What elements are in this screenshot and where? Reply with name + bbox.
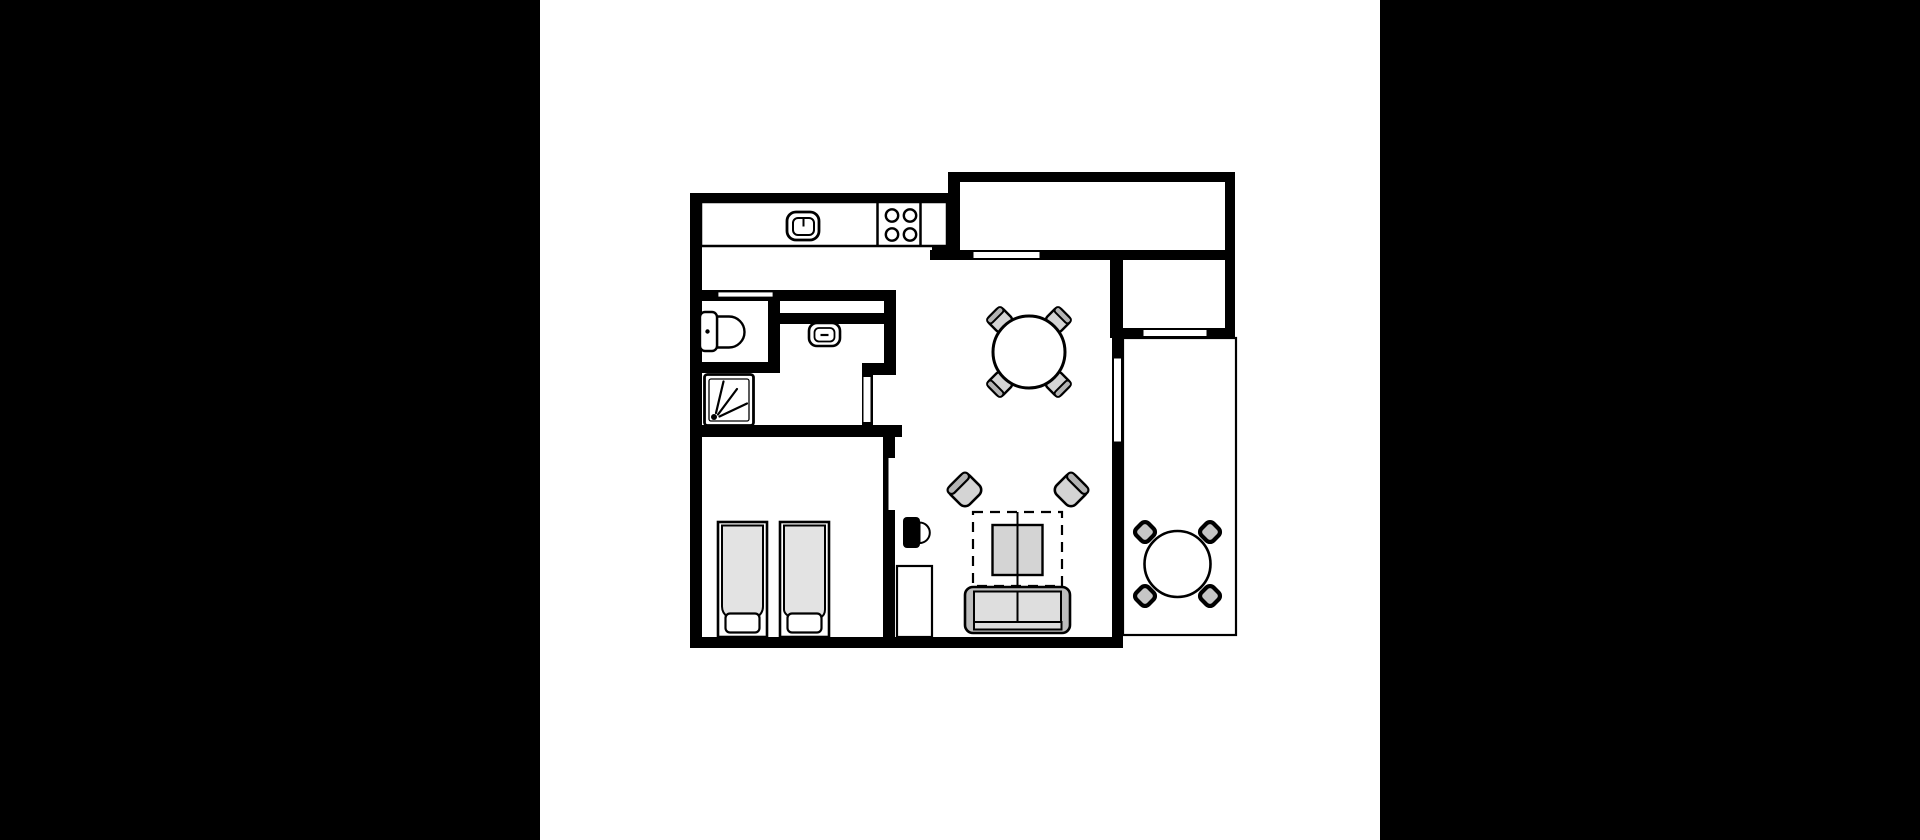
wc-vent-window <box>718 292 773 297</box>
toilet-flush-dot <box>705 329 709 333</box>
wall-left <box>690 193 702 648</box>
wall-wc-right <box>768 297 780 362</box>
floor-panel <box>540 0 1380 840</box>
bath-door-leaf <box>864 377 871 422</box>
sofa-cushion-left <box>974 592 1018 623</box>
burner-bottom-right <box>904 228 916 240</box>
wall-bath-jog <box>862 363 896 375</box>
bed-1-pillow <box>726 614 760 633</box>
wall-bath-inner-top <box>780 313 896 324</box>
wall-bottom <box>690 637 1123 648</box>
bedroom-door-leaf <box>889 458 896 510</box>
wall-bath-right <box>884 301 896 363</box>
sofa-front-edge <box>974 622 1062 630</box>
balcony-table <box>1145 531 1211 597</box>
hall-closet <box>897 566 932 637</box>
sofa-cushion-right <box>1018 592 1062 623</box>
storage-window <box>1143 330 1207 337</box>
entry-door-opening <box>973 252 1040 259</box>
burner-top-left <box>886 209 898 221</box>
wall-wc-bottom <box>690 362 780 373</box>
living-window <box>1114 358 1122 442</box>
dining-table <box>993 316 1065 388</box>
wall-upper-right <box>1225 172 1235 338</box>
bed-2-pillow <box>788 614 822 633</box>
bed-2-duvet <box>784 526 825 620</box>
bed-1-duvet <box>722 526 763 622</box>
shower-drain-dot <box>711 414 717 420</box>
wall-living-right <box>1112 250 1123 648</box>
screen <box>0 0 1920 840</box>
burner-bottom-left <box>886 228 898 240</box>
door-handle-pad <box>903 517 920 548</box>
wall-entry-top <box>950 172 1235 182</box>
burner-top-right <box>904 209 916 221</box>
toilet-bowl <box>717 317 745 348</box>
floor-plan-image <box>0 0 1920 840</box>
